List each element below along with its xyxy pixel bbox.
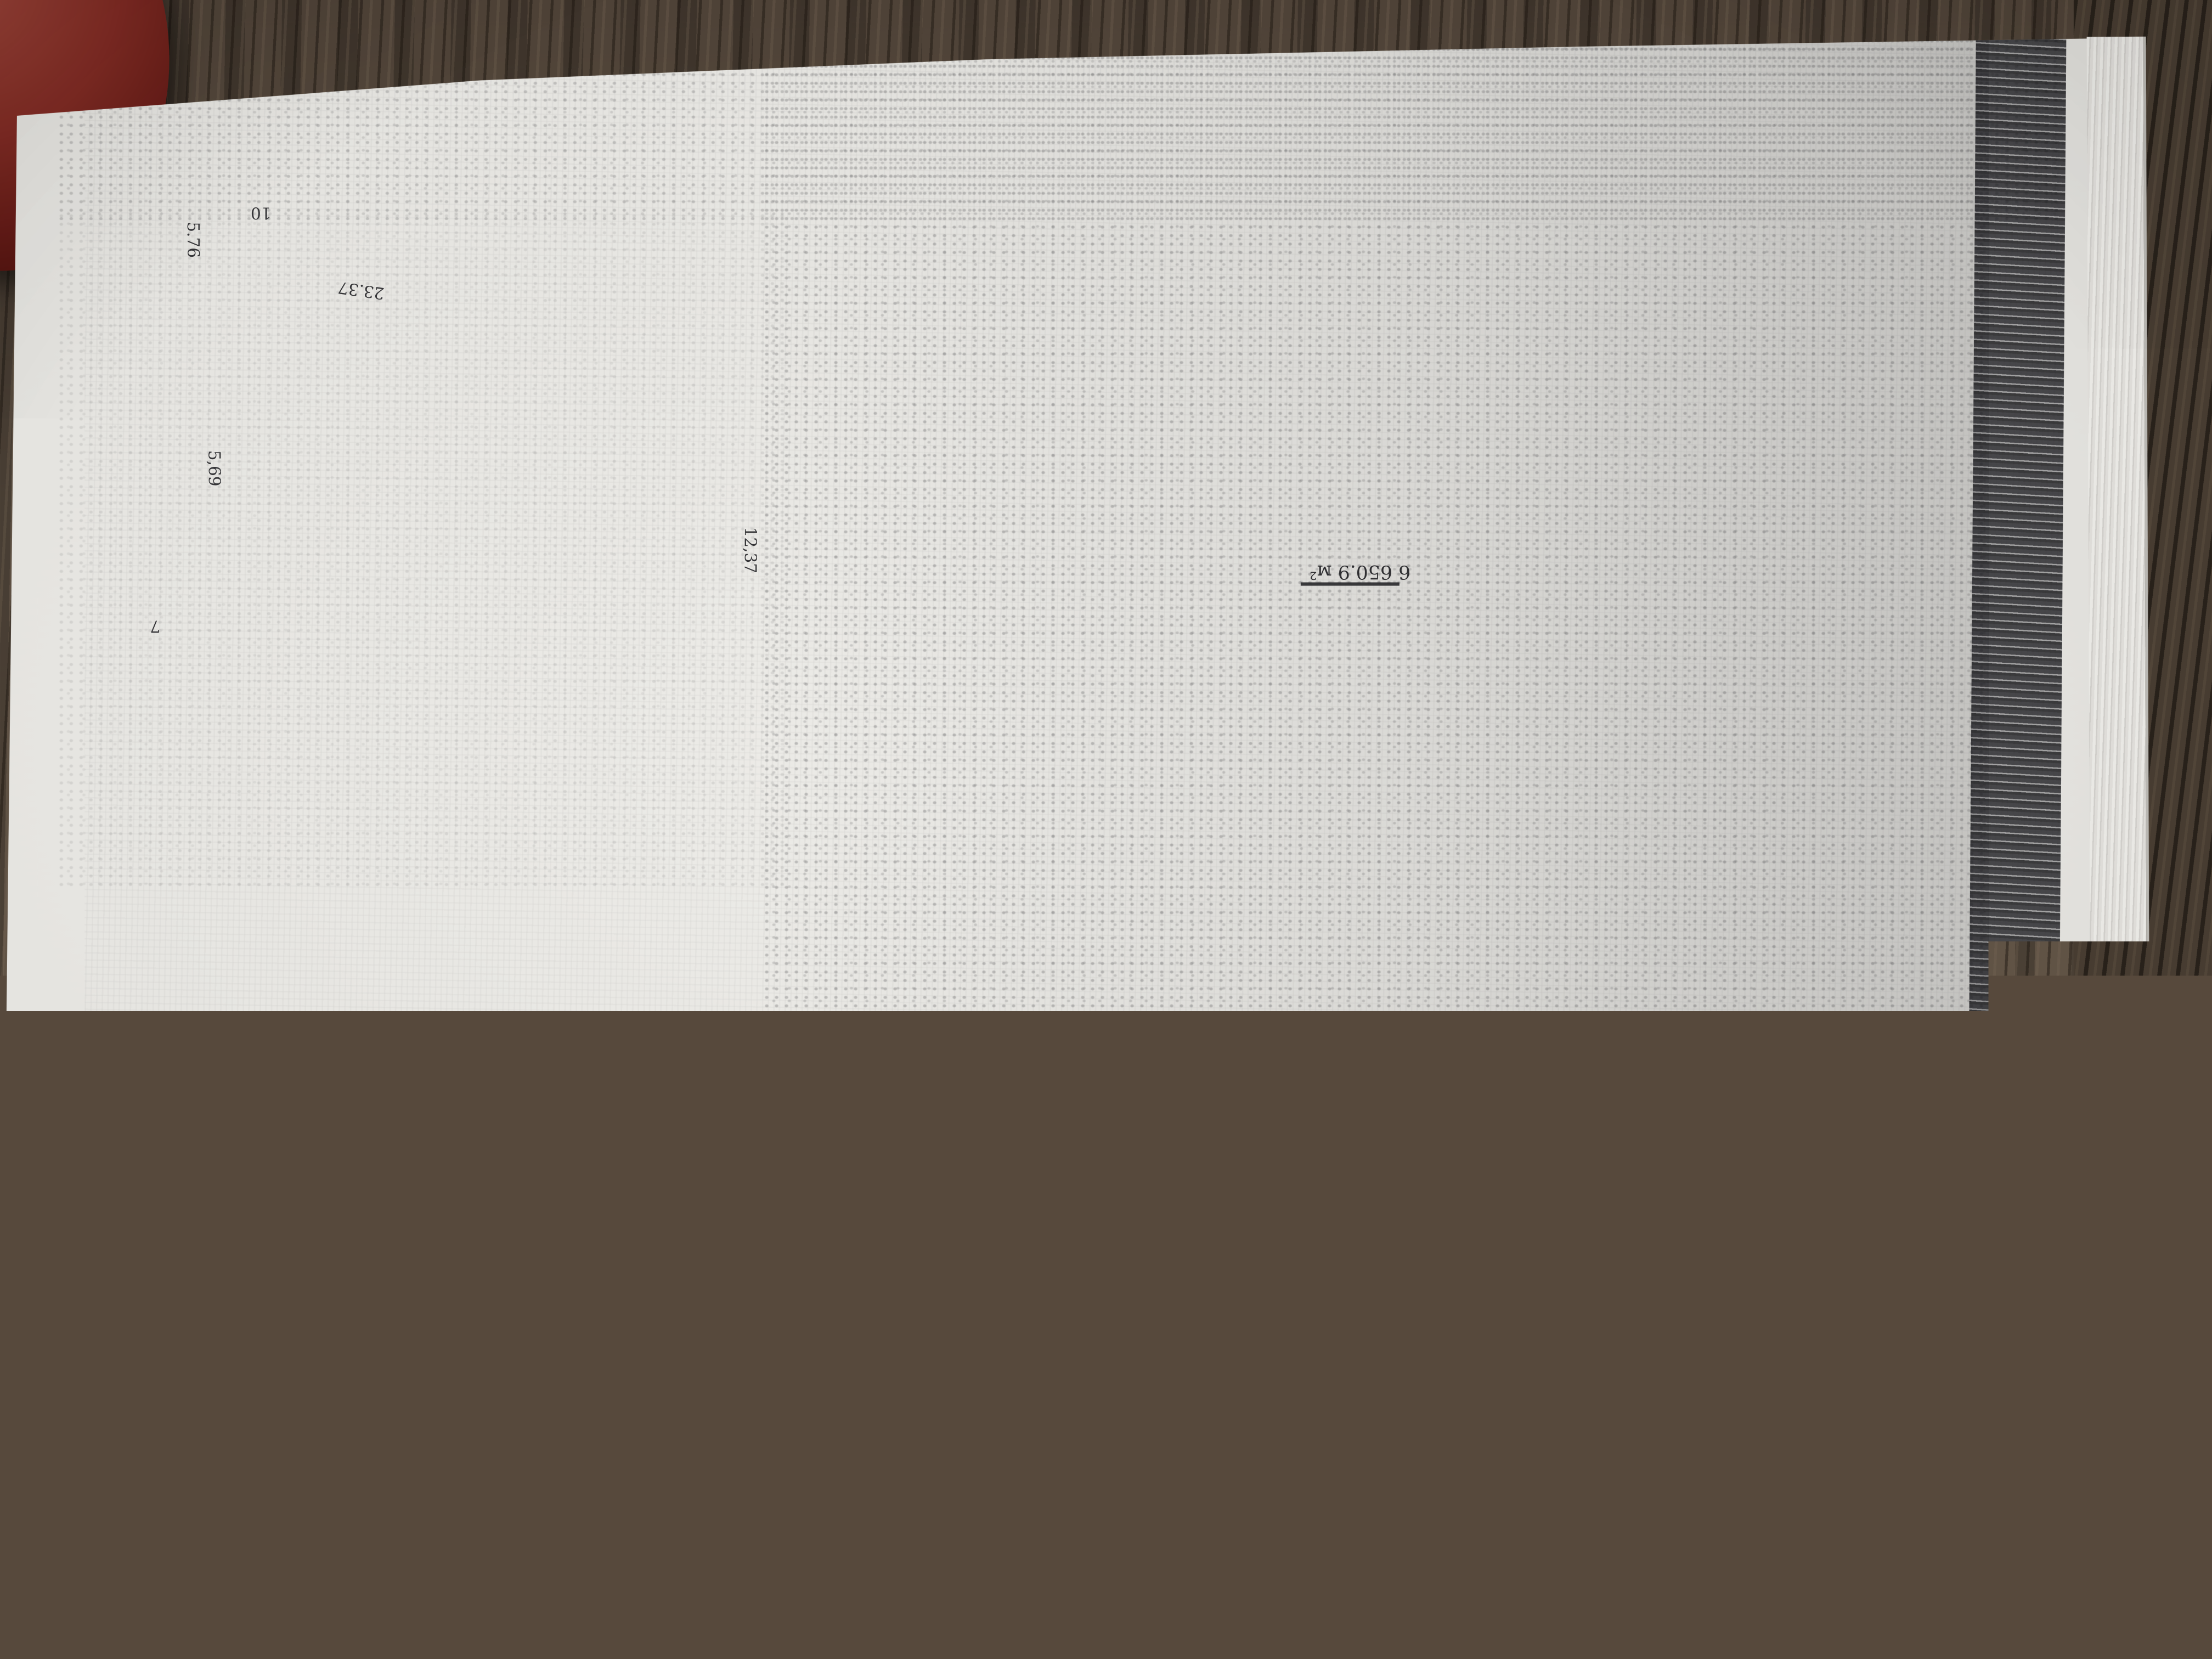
dim-5-83: 5.83 bbox=[907, 890, 944, 909]
room-label-17: 17 9.9 м² bbox=[433, 972, 515, 992]
room-label-13: 13 8.2 м² bbox=[973, 988, 1056, 1008]
room-label-8m2: 8 м² bbox=[1974, 917, 2012, 938]
dim-1-84: 1.84 bbox=[411, 1035, 444, 1052]
page-stack-edge bbox=[2087, 37, 2151, 1518]
photo-of-document: 6 650.9 м² 59.07 12,37 5.76 10 23.37 5,6… bbox=[0, 0, 2212, 1659]
dim-3-32: 3.32 bbox=[924, 1035, 961, 1053]
dim-2-82: 2.82 bbox=[1863, 804, 1899, 823]
dim-6-41: 6.41 bbox=[292, 875, 329, 894]
dim-5-76: 5.76 bbox=[184, 222, 202, 258]
handwritten-mark: у bbox=[249, 1403, 280, 1455]
dim-2-34: 2.34 bbox=[460, 887, 493, 904]
dim-2-47: 2.47 bbox=[363, 1001, 382, 1037]
photocopied-floor-plan-page: 6 650.9 м² 59.07 12,37 5.76 10 23.37 5,6… bbox=[0, 0, 2212, 1659]
dim-5-86: 5.86 bbox=[1301, 830, 1337, 849]
room-label-15: 15 12.2 м² bbox=[918, 862, 1012, 883]
dim-3-43: 3.43 bbox=[969, 952, 988, 989]
room-label-18: 18 14.5 м² bbox=[369, 948, 463, 969]
room-label-21: 21 9 м² bbox=[103, 969, 168, 990]
dim-41: 41 bbox=[142, 871, 160, 888]
dim-2-10: 2.10 bbox=[885, 848, 902, 881]
dim-5-58: 5.58 bbox=[1727, 940, 1746, 976]
dim-5-69: 5,69 bbox=[205, 450, 224, 487]
dim-6-17: 6.17 bbox=[387, 892, 405, 928]
dim-10: 10 bbox=[251, 204, 272, 222]
room-label-11: 11 15.8 м² bbox=[1468, 951, 1562, 972]
dim-35: 35 bbox=[130, 833, 149, 850]
dim-2-40: 2.40 bbox=[988, 917, 1024, 936]
dim-23-37: 23.37 bbox=[337, 278, 386, 303]
room-label-19: 19 15.2 м² bbox=[269, 1011, 363, 1032]
room-label-12: 12 32.9 м² bbox=[1306, 949, 1400, 970]
handwritten-mark: Г bbox=[1530, 1426, 1567, 1480]
dim-2-86b: 2.86 bbox=[1742, 810, 1779, 829]
handwritten-mark: 3 bbox=[1142, 1414, 1171, 1464]
floor-plan: 6 650.9 м² 59.07 12,37 5.76 10 23.37 5,6… bbox=[0, 0, 2212, 1659]
dim-7: 7 bbox=[150, 617, 160, 635]
dim-5-60-left: 5,60 bbox=[209, 665, 228, 701]
dim-12-37: 12,37 bbox=[741, 527, 760, 574]
dim-6-61: 6.61 bbox=[655, 1073, 691, 1091]
dim-6-01: 6.01 bbox=[800, 1036, 837, 1054]
hall-area-label: 6 650.9 м² bbox=[1310, 561, 1410, 583]
dim-5-61: 5.61 bbox=[1040, 952, 1059, 989]
binding-slot bbox=[0, 1538, 67, 1558]
room-label-10: 10 16.0 м² bbox=[1752, 944, 1846, 964]
room-label-20: 20 14.1 м² bbox=[272, 906, 366, 927]
dim-6-36: 6.36 bbox=[267, 1045, 303, 1063]
dim-59-07: 59.07 bbox=[1254, 1136, 1300, 1155]
plan-walls bbox=[0, 64, 2049, 1093]
dim-2-86a: 2.86 bbox=[1482, 817, 1518, 836]
dim-2-41: 2.41 bbox=[453, 865, 486, 882]
dim-1-88: 1.88 bbox=[394, 821, 427, 838]
plan-window-band bbox=[42, 1057, 1982, 1180]
handwritten-marks: у 3 Г bbox=[249, 1403, 1567, 1480]
dim-5-60-right: 5,60 bbox=[1843, 940, 1861, 976]
room-label-16: 16 37.3 м² bbox=[771, 962, 865, 983]
